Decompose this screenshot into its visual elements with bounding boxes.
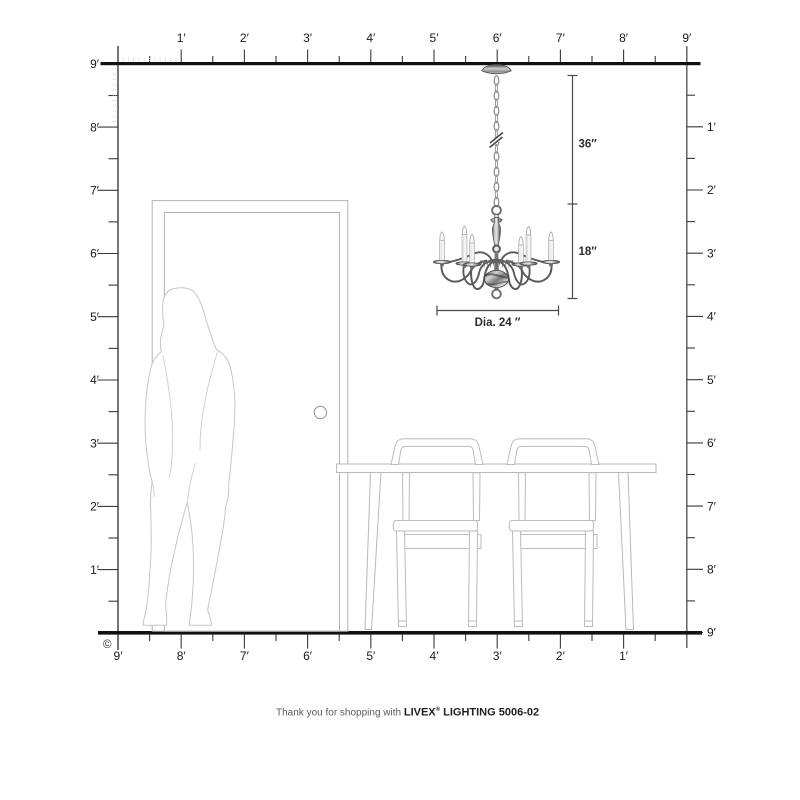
svg-text:6′: 6′ bbox=[493, 31, 503, 45]
svg-text:9′: 9′ bbox=[90, 57, 100, 71]
svg-text:3′: 3′ bbox=[493, 649, 503, 663]
svg-text:9′: 9′ bbox=[707, 626, 717, 640]
svg-text:4′: 4′ bbox=[707, 310, 717, 324]
svg-text:7′: 7′ bbox=[556, 31, 566, 45]
svg-text:2′: 2′ bbox=[707, 183, 717, 197]
svg-text:3′: 3′ bbox=[707, 246, 717, 260]
svg-text:5′: 5′ bbox=[430, 31, 440, 45]
svg-text:©: © bbox=[103, 639, 112, 651]
svg-text:Thank you for shopping with LI: Thank you for shopping with LIVEX® LIGHT… bbox=[276, 706, 539, 719]
svg-text:18″: 18″ bbox=[579, 246, 598, 258]
svg-text:5′: 5′ bbox=[90, 310, 100, 324]
svg-text:5′: 5′ bbox=[366, 649, 376, 663]
svg-text:2′: 2′ bbox=[240, 31, 250, 45]
svg-text:8′: 8′ bbox=[177, 649, 187, 663]
svg-text:4′: 4′ bbox=[90, 373, 100, 387]
svg-text:9′: 9′ bbox=[114, 649, 124, 663]
svg-text:1′: 1′ bbox=[177, 31, 187, 45]
svg-text:7′: 7′ bbox=[90, 184, 100, 198]
svg-text:2′: 2′ bbox=[90, 500, 100, 514]
svg-text:6′: 6′ bbox=[707, 436, 717, 450]
svg-text:8′: 8′ bbox=[619, 31, 629, 45]
svg-text:4′: 4′ bbox=[366, 31, 376, 45]
svg-text:5′: 5′ bbox=[707, 373, 717, 387]
svg-text:9′: 9′ bbox=[682, 31, 692, 45]
svg-text:1′: 1′ bbox=[707, 120, 717, 134]
svg-text:3′: 3′ bbox=[303, 31, 313, 45]
svg-text:1′: 1′ bbox=[619, 649, 629, 663]
svg-text:6′: 6′ bbox=[303, 649, 313, 663]
svg-text:3′: 3′ bbox=[90, 436, 100, 450]
svg-text:4′: 4′ bbox=[430, 649, 440, 663]
svg-text:Dia. 24 ″: Dia. 24 ″ bbox=[475, 317, 521, 329]
svg-text:7′: 7′ bbox=[240, 649, 250, 663]
svg-text:1′: 1′ bbox=[90, 563, 100, 577]
svg-text:2′: 2′ bbox=[556, 649, 566, 663]
svg-text:8′: 8′ bbox=[90, 120, 100, 134]
svg-text:7′: 7′ bbox=[707, 499, 717, 513]
svg-text:6′: 6′ bbox=[90, 247, 100, 261]
svg-text:8′: 8′ bbox=[707, 563, 717, 577]
svg-text:36″: 36″ bbox=[579, 139, 598, 151]
